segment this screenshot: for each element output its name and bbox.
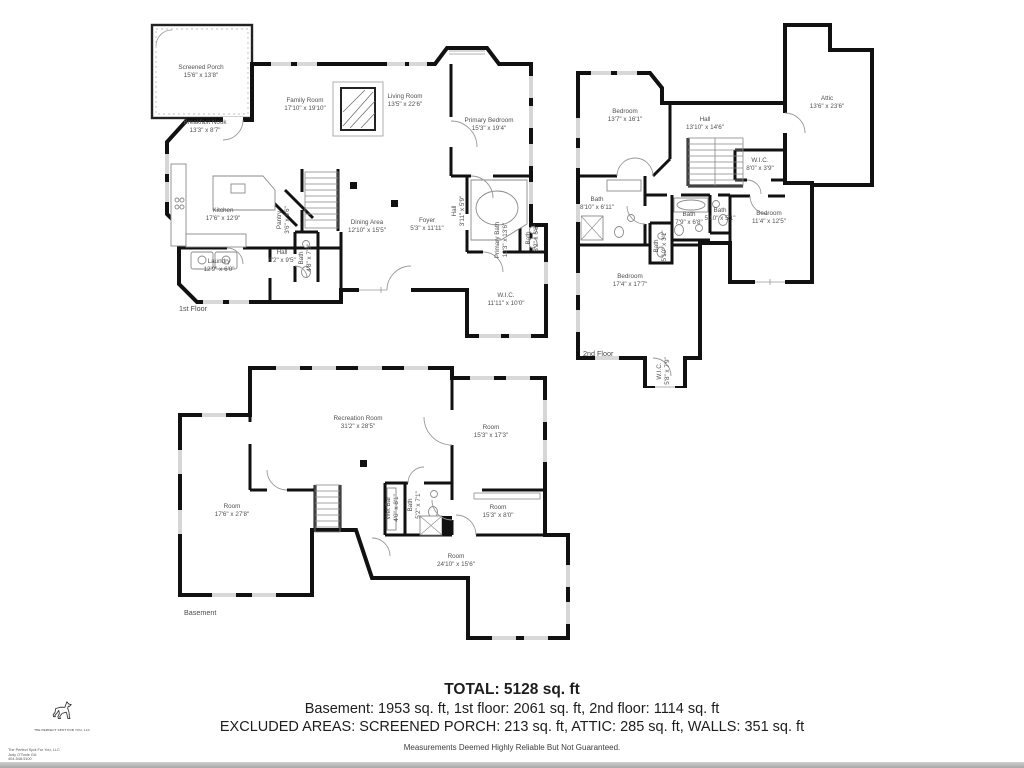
company-name-text: THE PERFECT SPOT FOR YOU, LLC <box>30 728 94 732</box>
room-label-recreation: Recreation Room31'2" x 28'5" <box>334 415 383 431</box>
first-floor-plan: Screened Porch15'6" x 13'8" Breakfast No… <box>135 14 555 339</box>
second-floor-drawing <box>575 18 895 388</box>
room-label-bath-2: Bath3'2" x 6'6" <box>525 224 541 252</box>
room-label-wic-1: W.I.C.8'0" x 3'9" <box>746 157 774 173</box>
room-label-dining-area: Dining Area12'10" x 15'5" <box>348 219 386 235</box>
room-label-hall-2: Hall3'11" x 5'9" <box>451 196 467 227</box>
room-label-wic: W.I.C.11'11" x 10'0" <box>487 292 524 308</box>
floor-caption-second: 2nd Floor <box>583 349 613 358</box>
company-logo-block: THE PERFECT SPOT FOR YOU, LLC <box>30 700 94 732</box>
second-floor-plan: Bedroom13'7" x 16'1" Hall13'10" x 14'6" … <box>575 18 895 388</box>
room-label-hall-1: Hall6'2" x 9'5" <box>268 249 296 265</box>
room-label-bath-1: Bath4'8" x 7'6" <box>298 244 314 272</box>
room-label-room-1: Room15'3" x 17'3" <box>474 424 509 440</box>
room-label-primary-bath: Primary Bath12'3" x 13'6" <box>494 222 510 258</box>
footer-contact-block: The Perfect Spot For You, LLC Jody O'Too… <box>8 748 60 762</box>
room-label-family-room: Family Room17'10" x 19'10" <box>284 97 326 113</box>
column-icon <box>442 516 452 535</box>
basement-plan: Recreation Room31'2" x 28'5" Room15'3" x… <box>172 360 574 650</box>
room-label-primary-bedroom: Primary Bedroom15'3" x 19'4" <box>465 117 514 133</box>
column-icon <box>360 460 367 467</box>
room-label-bedroom-1: Bedroom13'7" x 16'1" <box>608 108 643 124</box>
room-label-breakfast-nook: Breakfast Nook13'3" x 8'7" <box>183 119 226 135</box>
first-floor-drawing <box>135 14 555 339</box>
floor-caption-first: 1st Floor <box>179 304 207 313</box>
room-label-bath-2: Bath7'9" x 6'8" <box>675 211 703 227</box>
room-label-bath-4: Bath5'10" x 3'1" <box>653 230 669 261</box>
disclaimer-text: Measurements Deemed Highly Reliable But … <box>0 743 1024 752</box>
floor-caption-basement: Basement <box>184 608 216 617</box>
room-label-bedroom-2: Bedroom11'4" x 12'5" <box>752 210 786 226</box>
room-label-foyer: Foyer5'3" x 11'11" <box>410 217 444 233</box>
footer-line: The Perfect Spot For You, LLC <box>8 748 60 753</box>
room-label-wic-2: W.I.C.5'8" x 7'9" <box>656 357 672 385</box>
excluded-areas-text: EXCLUDED AREAS: SCREENED PORCH: 213 sq. … <box>0 719 1024 735</box>
room-label-screened-porch: Screened Porch15'6" x 13'8" <box>178 64 223 80</box>
room-label-attic: Attic13'6" x 23'6" <box>810 95 845 111</box>
dog-logo-icon <box>49 700 75 722</box>
counter-icon <box>474 493 540 499</box>
room-label-living-room: Living Room13'5" x 22'6" <box>388 93 423 109</box>
room-label-room-4: Room24'10" x 15'6" <box>437 553 475 569</box>
room-label-bath-1: Bath8'10" x 6'11" <box>580 196 614 212</box>
bottom-edge-bar <box>0 762 1024 768</box>
room-label-bedroom-3: Bedroom17'4" x 17'7" <box>613 273 648 289</box>
room-label-laundry: Laundry12'9" x 6'0" <box>203 258 234 274</box>
floor-areas-text: Basement: 1953 sq. ft, 1st floor: 2061 s… <box>0 701 1024 717</box>
room-label-room-2: Room17'6" x 27'8" <box>215 503 250 519</box>
floorplan-page: Screened Porch15'6" x 13'8" Breakfast No… <box>0 0 1024 768</box>
total-area-text: TOTAL: 5128 sq. ft <box>0 681 1024 699</box>
room-label-hall: Hall13'10" x 14'6" <box>686 116 724 132</box>
room-label-wet-bar: Wet Bar4'0" x 8'1" <box>385 494 401 522</box>
room-label-kitchen: Kitchen17'6" x 12'9" <box>206 207 241 223</box>
room-label-pantry: Pantry3'6" x 8'6" <box>276 206 292 234</box>
room-label-room-3: Room15'3" x 8'0" <box>482 504 513 520</box>
room-label-bath-3: Bath5'10" x 5'1" <box>704 207 735 223</box>
room-label-bath: Bath5'2" x 7'1" <box>407 491 423 519</box>
